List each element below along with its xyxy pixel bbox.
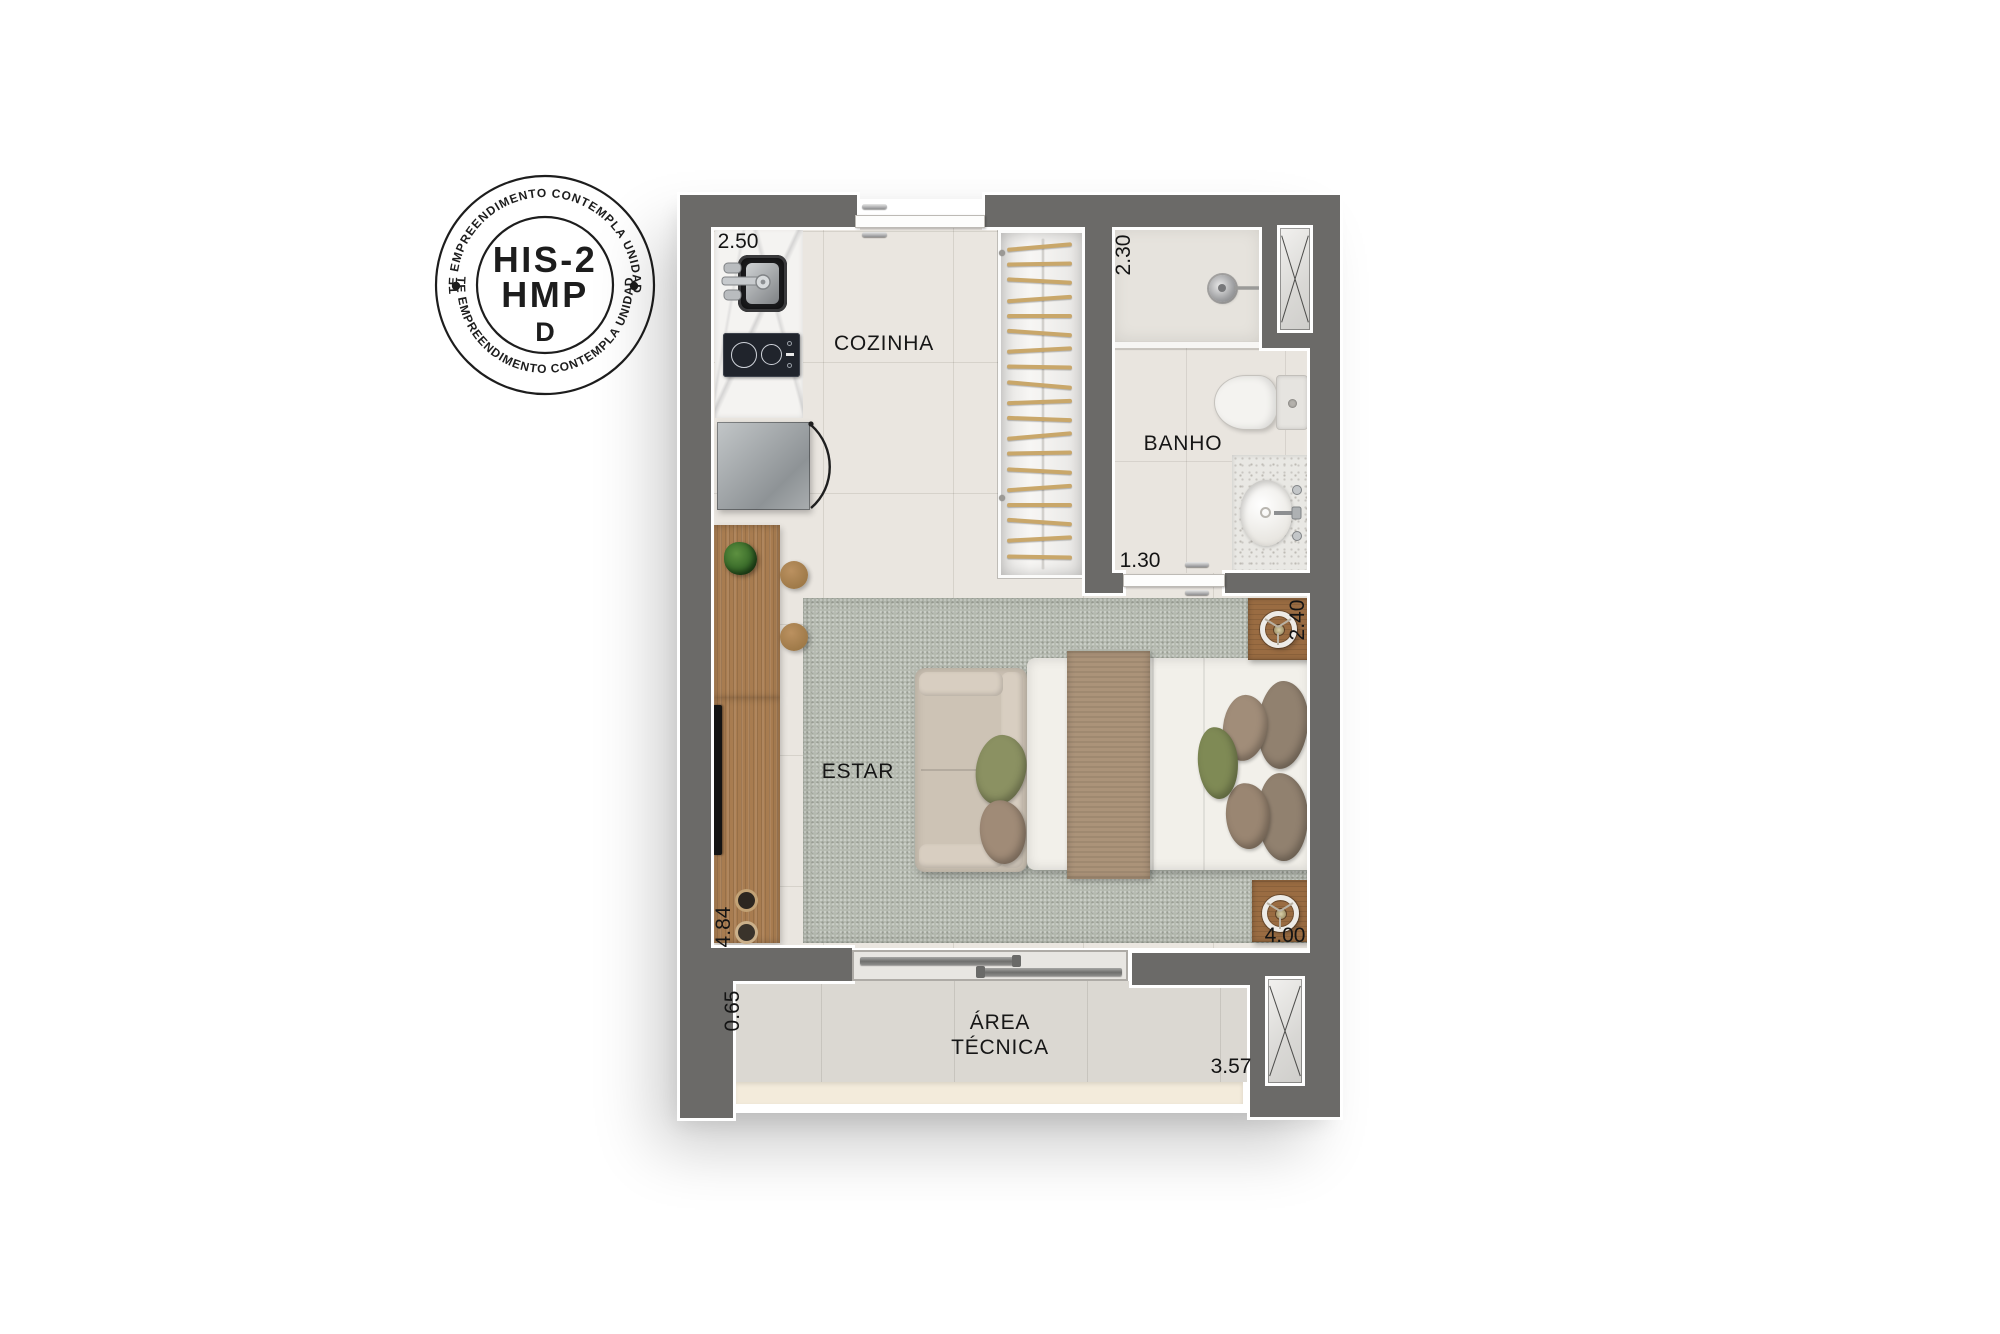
entry-door-handle-outside [862, 204, 887, 209]
room-label-bathroom: BANHO [1144, 432, 1223, 456]
dim-living-bottom: 4.00 [1265, 924, 1306, 948]
wall-bathroom-bottom-stub [1112, 573, 1123, 593]
stamp-dot-left [452, 282, 460, 290]
room-label-living: ESTAR [822, 760, 894, 784]
wall-left [680, 195, 711, 950]
room-label-technical-line1: ÁREA [951, 1010, 1049, 1035]
floor-plan: COZINHA BANHO ESTAR ÁREA TÉCNICA 2.50 2.… [680, 195, 1340, 1118]
page: ESTE EMPREENDIMENTO CONTEMPLA UNIDADES E… [0, 0, 2000, 1334]
wall-bottom-left-column [680, 948, 733, 1118]
ventilation-shaft-bottom [1265, 976, 1305, 1086]
dim-shower-side: 2.30 [1112, 235, 1136, 276]
bathroom-door-handle-outside [1185, 562, 1209, 567]
stamp-dot-right [630, 282, 638, 290]
dim-bed-side: 2.40 [1286, 600, 1310, 641]
dim-technical-bottom: 3.57 [1211, 1055, 1252, 1079]
shaft-x-icon [1280, 228, 1310, 330]
window-panel-left [860, 957, 1020, 965]
dim-living-left: 4.84 [712, 907, 736, 948]
dim-technical-left: 0.65 [721, 991, 745, 1032]
sliding-window [852, 950, 1128, 981]
window-handle-2 [976, 966, 985, 978]
window-handle-1 [1012, 955, 1021, 967]
room-label-kitchen: COZINHA [834, 332, 934, 356]
shaft-x-icon [1268, 979, 1302, 1083]
ventilation-shaft-top [1277, 225, 1313, 333]
room-label-technical: ÁREA TÉCNICA [951, 1010, 1049, 1060]
entry-door-handle-inside [862, 232, 887, 237]
dim-bathroom-door: 1.30 [1120, 549, 1161, 573]
wall-bathroom-left [1085, 195, 1112, 593]
certification-stamp: ESTE EMPREENDIMENTO CONTEMPLA UNIDADES E… [433, 173, 657, 397]
dim-kitchen-top: 2.50 [718, 230, 759, 254]
entry-door [855, 215, 985, 228]
stamp-logo-d-icon: D [535, 317, 555, 347]
bathroom-door [1123, 574, 1225, 587]
window-panel-right [978, 968, 1122, 976]
room-label-technical-line2: TÉCNICA [951, 1035, 1049, 1060]
wall-bathroom-bottom-right [1225, 573, 1340, 593]
bathroom-door-handle-inside [1185, 590, 1209, 595]
stamp-code-line2: HMP [501, 274, 589, 315]
